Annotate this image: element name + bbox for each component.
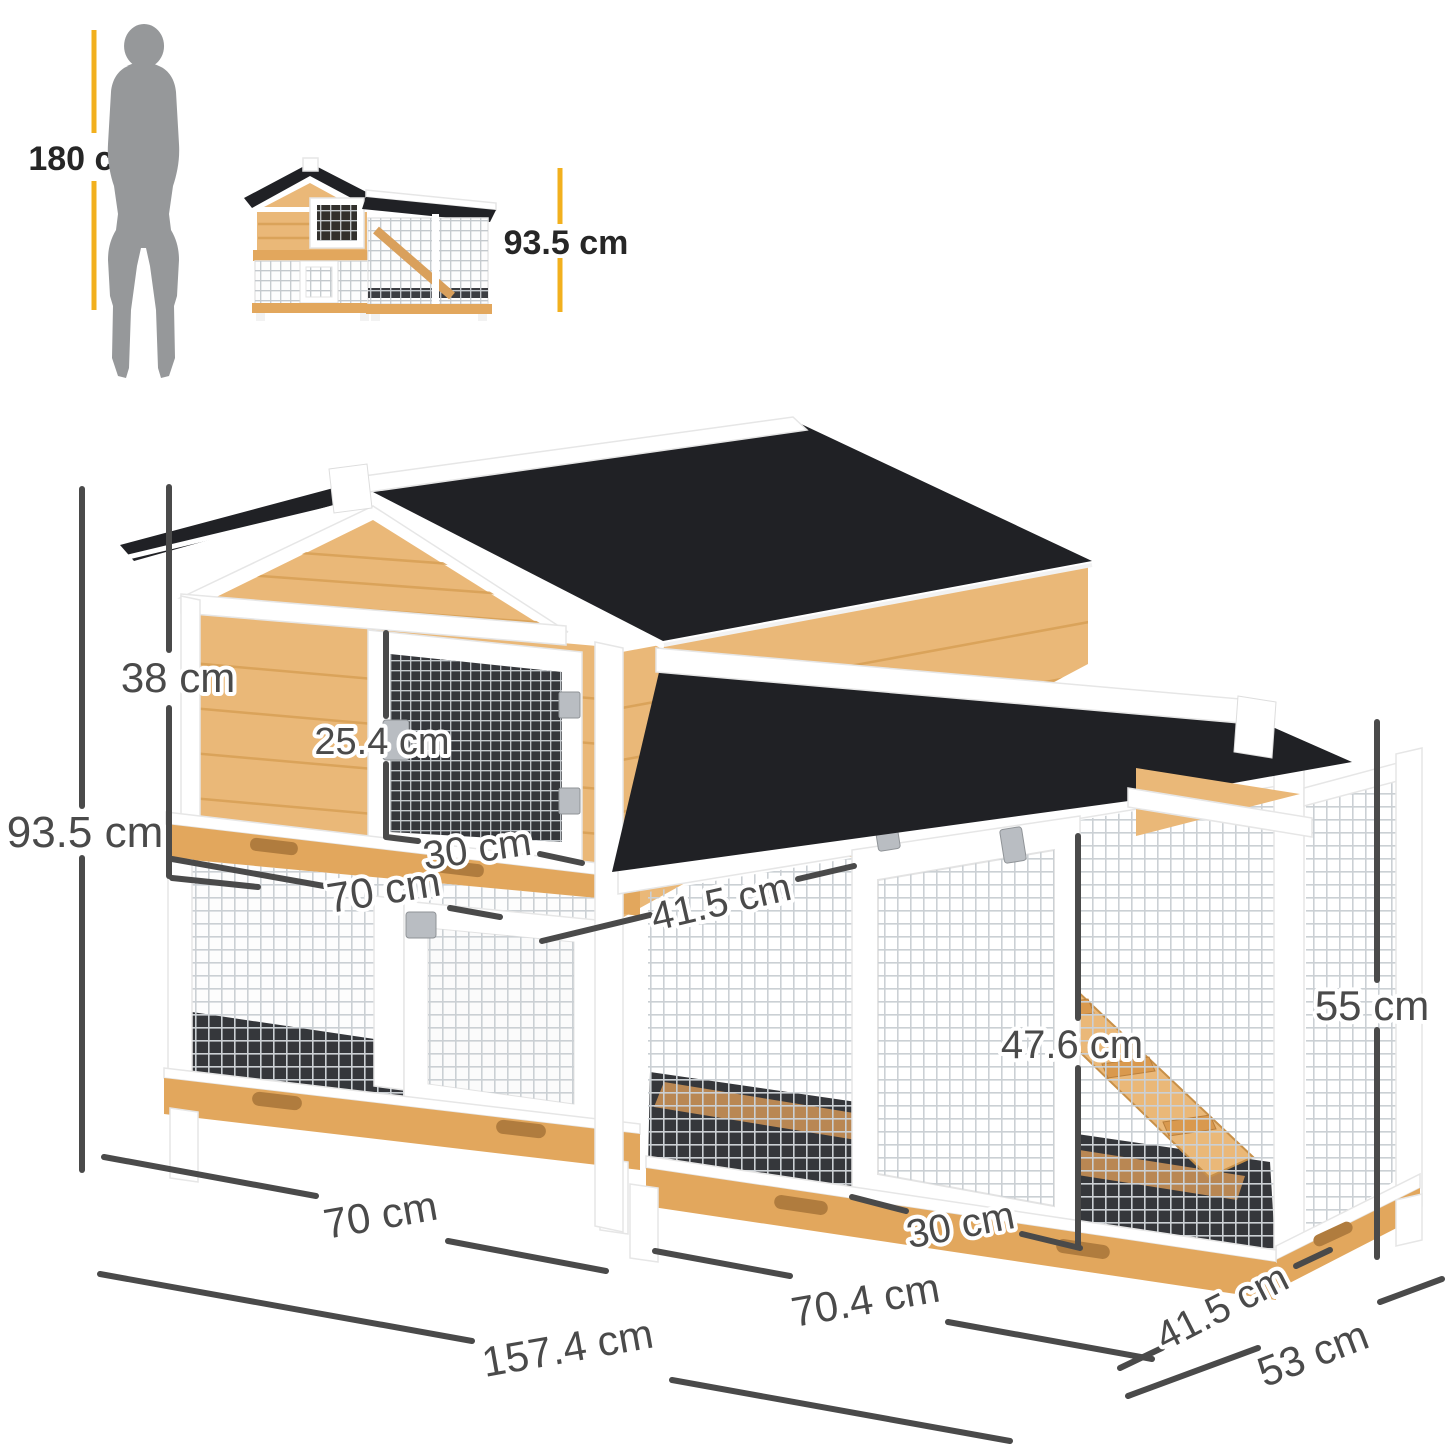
thumbnail-bottom-rail <box>252 303 374 313</box>
lower-story <box>164 858 640 1234</box>
run-front-right-post <box>1274 764 1304 1256</box>
dim-run-height-label: 55 cm <box>1315 982 1429 1029</box>
thumbnail-leg <box>256 313 265 321</box>
diagram-canvas: 180 cm <box>0 0 1445 1445</box>
run-roof-finial <box>1234 696 1276 758</box>
thumbnail-run-bottom-rail <box>366 304 492 314</box>
upper-door-hinge-icon <box>559 788 580 814</box>
person-silhouette <box>108 24 179 378</box>
product-thumbnail <box>244 158 496 321</box>
dim-overall-depth-label: 53 cm <box>1251 1311 1375 1396</box>
dim-lower-left-width-label: 70 cm <box>320 1182 441 1248</box>
house-right-post <box>595 642 623 1232</box>
dim-run-width-label: 70.4 cm <box>788 1264 943 1336</box>
lower-center-stile <box>374 896 404 1090</box>
thumbnail-roof-finial <box>303 158 318 171</box>
hutch-illustration <box>120 417 1422 1300</box>
thumbnail-run-stile <box>432 214 439 304</box>
dim-upper-house-height-label: 38 cm <box>121 654 235 701</box>
left-corner-trim <box>181 596 200 830</box>
run-leg <box>1396 1194 1422 1246</box>
thumbnail-leg <box>371 314 380 321</box>
run-mesh-right <box>1080 788 1276 1252</box>
lower-door-latch-icon <box>406 912 436 938</box>
scale-reference: 180 cm <box>28 24 628 378</box>
product-height-label: 93.5 cm <box>504 224 629 262</box>
dimension-diagram: 180 cm <box>0 0 1445 1445</box>
thumbnail-tray <box>253 250 371 261</box>
roof-finial <box>329 464 372 513</box>
thumbnail-leg <box>360 313 369 321</box>
dim-ramp-length-label: 47.6 cm <box>1001 1023 1143 1067</box>
dim-upper-door-height-label: 25.4 cm <box>314 721 449 763</box>
run-door-hinge-icon <box>999 826 1026 863</box>
dim-overall-width-label: 157.4 cm <box>478 1310 656 1386</box>
thumbnail-leg <box>478 314 487 321</box>
upper-door-hinge-icon <box>559 692 580 718</box>
dim-total-height: 93.5 cm <box>7 489 164 1170</box>
rear-right-post <box>1396 748 1422 1212</box>
dim-total-height-label: 93.5 cm <box>7 808 164 857</box>
